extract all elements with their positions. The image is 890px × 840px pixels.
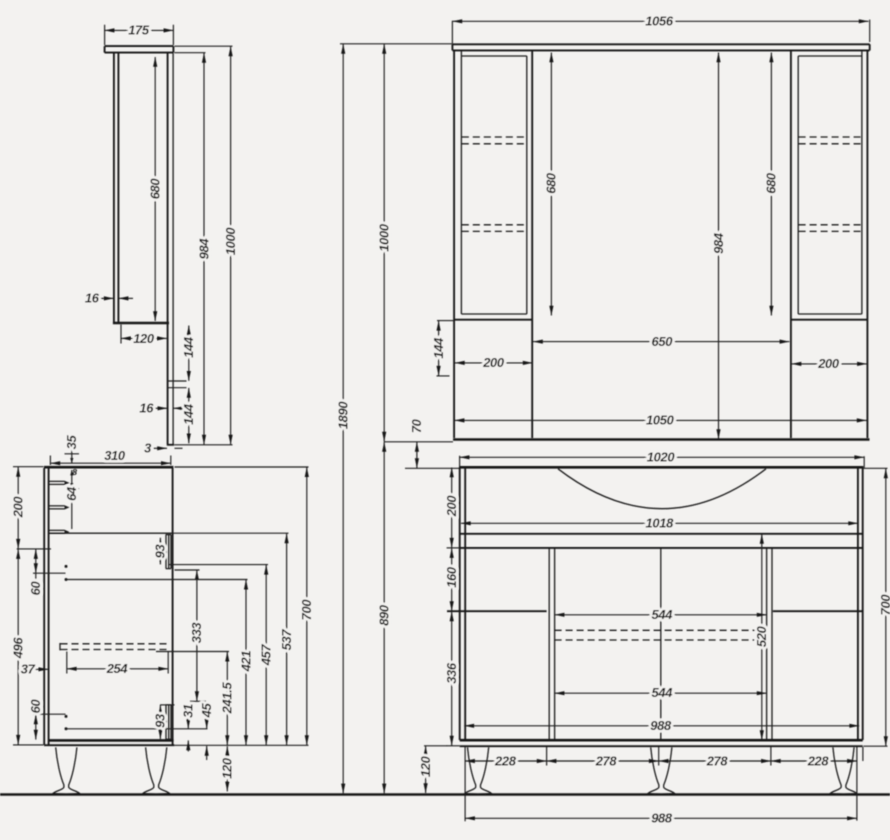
svg-text:60: 60 [28,581,43,596]
svg-text:200: 200 [482,355,505,370]
svg-text:544: 544 [651,607,672,622]
svg-text:31: 31 [181,704,196,718]
svg-text:175: 175 [128,23,150,38]
svg-text:680: 680 [544,172,559,194]
svg-text:650: 650 [651,334,673,349]
svg-text:254: 254 [106,661,128,676]
svg-text:1056: 1056 [645,14,674,29]
svg-text:16: 16 [85,291,100,306]
svg-text:1050: 1050 [646,413,675,428]
svg-text:520: 520 [754,625,769,647]
svg-text:160: 160 [444,566,459,588]
svg-text:984: 984 [711,233,726,254]
svg-text:336: 336 [444,662,459,684]
svg-text:16: 16 [139,401,154,416]
svg-text:200: 200 [10,496,25,519]
svg-text:1000: 1000 [377,223,392,252]
svg-text:984: 984 [196,239,211,260]
svg-text:1000: 1000 [223,227,238,256]
svg-text:200: 200 [817,356,840,371]
svg-text:144: 144 [181,337,196,358]
svg-text:45: 45 [199,703,214,719]
svg-text:988: 988 [650,718,672,733]
svg-text:700: 700 [299,599,314,621]
svg-text:537: 537 [279,629,294,651]
svg-text:496: 496 [10,637,25,660]
svg-text:60: 60 [28,699,43,714]
svg-text:241.5: 241.5 [220,681,235,714]
svg-text:1018: 1018 [646,515,675,530]
svg-text:680: 680 [148,178,163,200]
svg-text:278: 278 [706,753,729,768]
svg-text:70: 70 [409,418,424,433]
svg-text:35: 35 [64,435,79,450]
svg-text:3: 3 [144,441,152,456]
svg-text:988: 988 [651,811,673,826]
svg-text:310: 310 [104,448,126,463]
svg-text:544: 544 [651,685,672,700]
svg-text:93: 93 [153,544,168,559]
svg-text:144: 144 [181,404,196,425]
svg-text:228: 228 [807,753,830,768]
svg-text:1020: 1020 [647,450,676,465]
svg-text:680: 680 [764,172,779,194]
svg-text:457: 457 [259,644,274,667]
svg-text:278: 278 [595,753,618,768]
svg-text:8: 8 [72,467,77,477]
svg-text:37: 37 [21,662,36,677]
svg-text:120: 120 [133,331,155,346]
svg-text:700: 700 [878,594,890,616]
svg-text:64: 64 [64,487,79,501]
svg-text:144: 144 [431,338,446,359]
svg-text:228: 228 [494,753,517,768]
svg-text:120: 120 [220,757,235,779]
svg-text:93: 93 [153,713,168,728]
svg-text:200: 200 [444,495,459,518]
svg-text:890: 890 [377,604,392,626]
svg-text:333: 333 [189,622,204,644]
svg-text:421: 421 [238,651,253,673]
svg-text:120: 120 [418,755,433,777]
svg-text:1890: 1890 [336,401,351,430]
